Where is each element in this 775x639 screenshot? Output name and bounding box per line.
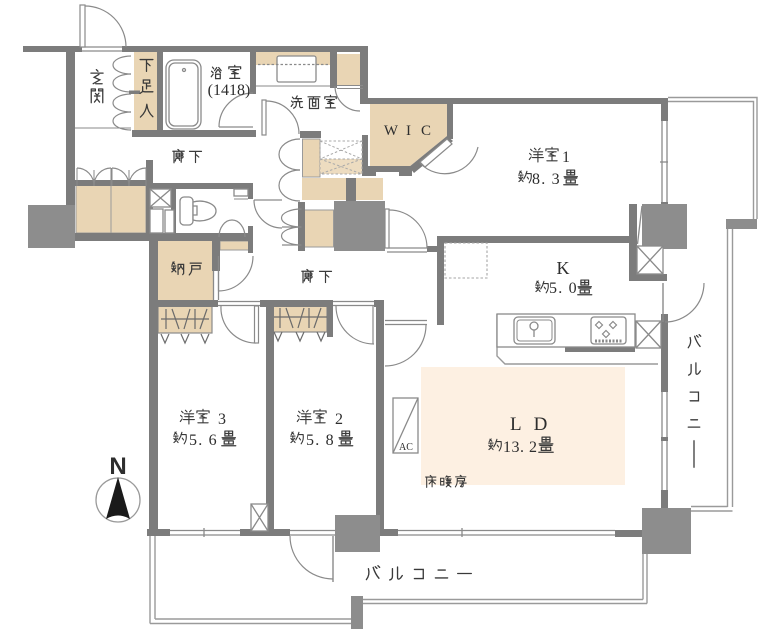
svg-text:AC: AC: [399, 442, 413, 453]
svg-text:(1418): (1418): [208, 82, 251, 99]
svg-text:3: 3: [218, 411, 226, 428]
svg-text:I: I: [406, 123, 411, 139]
svg-text:K: K: [557, 258, 570, 278]
svg-text:8. 3: 8. 3: [532, 171, 561, 188]
svg-text:5. 8: 5. 8: [306, 432, 335, 449]
svg-text:W: W: [384, 123, 399, 139]
svg-text:C: C: [421, 123, 431, 139]
svg-text:13. 2: 13. 2: [503, 439, 538, 456]
svg-text:5. 0: 5. 0: [549, 280, 578, 297]
svg-text:5. 6: 5. 6: [189, 432, 218, 449]
svg-text:L D: L D: [510, 414, 551, 435]
svg-text:N: N: [109, 453, 126, 480]
svg-text:1: 1: [562, 149, 570, 166]
svg-text:2: 2: [335, 411, 343, 428]
